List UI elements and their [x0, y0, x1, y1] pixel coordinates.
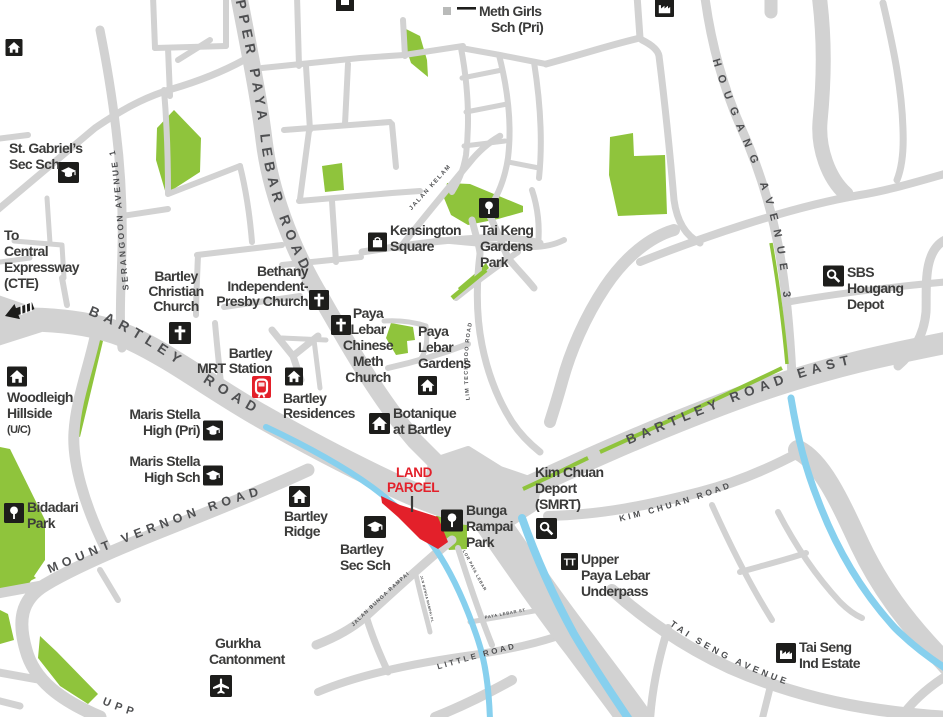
svg-text:BartleySec Sch: BartleySec Sch: [340, 541, 390, 573]
svg-text:Botaniqueat Bartley: Botaniqueat Bartley: [393, 405, 457, 437]
svg-text:Tai SengInd Estate: Tai SengInd Estate: [799, 639, 861, 671]
svg-text:BartleyChristianChurch: BartleyChristianChurch: [148, 268, 203, 314]
